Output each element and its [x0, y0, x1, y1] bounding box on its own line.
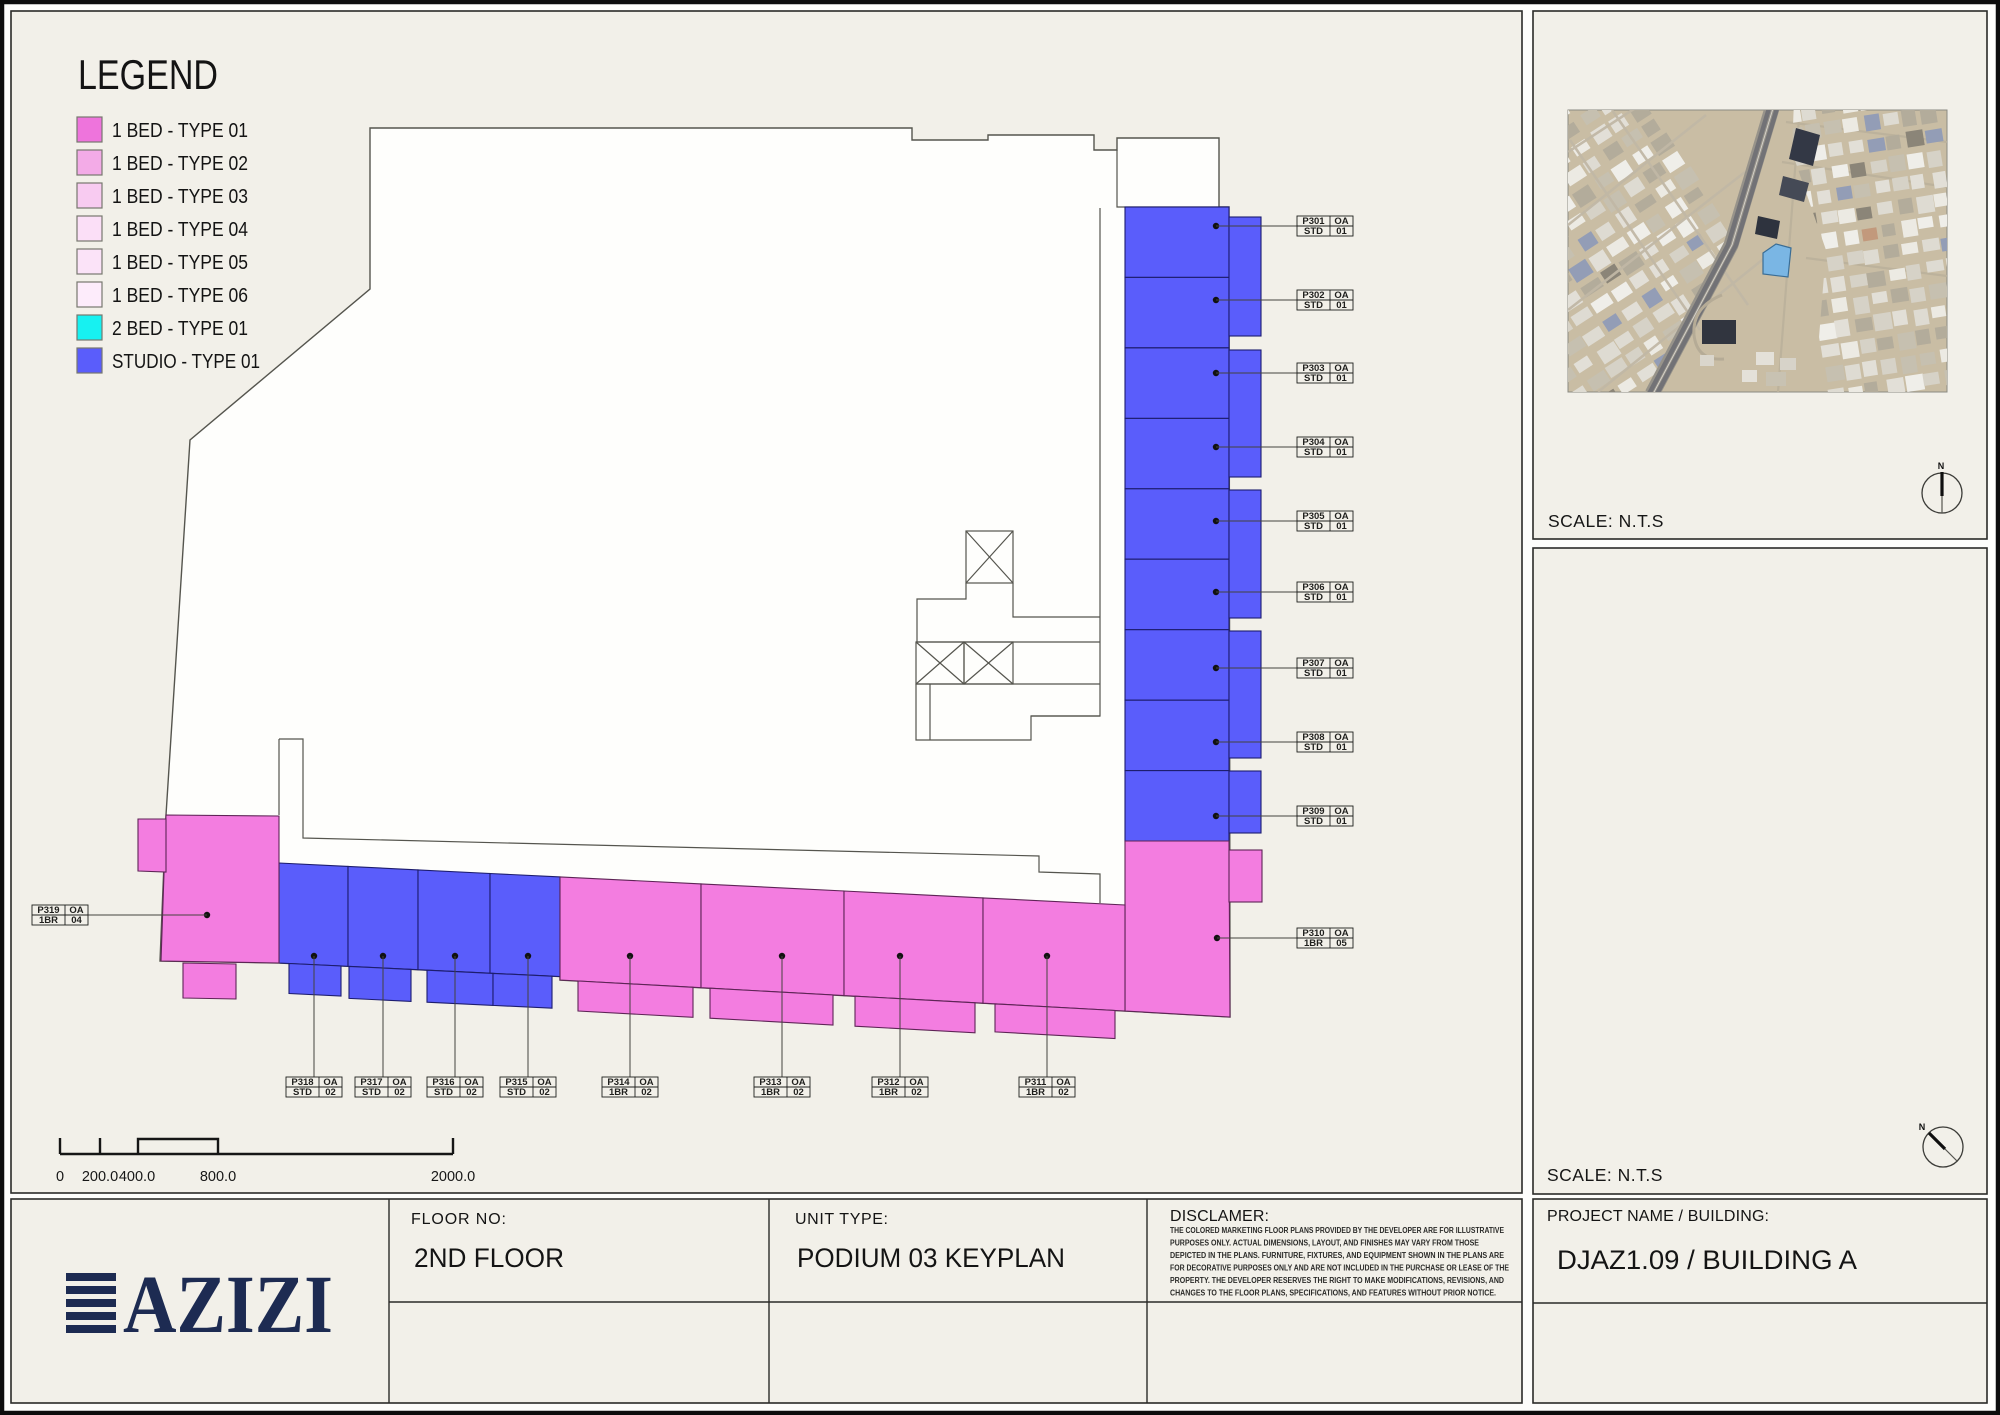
- svg-text:01: 01: [1336, 816, 1347, 827]
- svg-text:04: 04: [71, 915, 82, 926]
- svg-text:SCALE: N.T.S: SCALE: N.T.S: [1547, 1165, 1663, 1185]
- svg-text:01: 01: [1336, 668, 1347, 679]
- svg-text:PURPOSES ONLY. ACTUAL DIMENSIO: PURPOSES ONLY. ACTUAL DIMENSIONS, LAYOUT…: [1170, 1238, 1479, 1248]
- svg-text:STD: STD: [1304, 742, 1323, 753]
- svg-text:01: 01: [1336, 742, 1347, 753]
- svg-text:1 BED - TYPE 02: 1 BED - TYPE 02: [112, 152, 248, 175]
- svg-text:STD: STD: [1304, 668, 1323, 679]
- svg-text:1BR: 1BR: [879, 1087, 898, 1098]
- svg-text:DJAZ1.09 / BUILDING A: DJAZ1.09 / BUILDING A: [1557, 1245, 1857, 1275]
- svg-text:N: N: [1938, 461, 1945, 471]
- svg-text:N: N: [1919, 1122, 1926, 1132]
- svg-text:01: 01: [1336, 447, 1347, 458]
- svg-text:STD: STD: [1304, 816, 1323, 827]
- svg-text:02: 02: [394, 1087, 405, 1098]
- svg-text:STD: STD: [1304, 226, 1323, 237]
- svg-text:01: 01: [1336, 300, 1347, 311]
- svg-text:02: 02: [539, 1087, 550, 1098]
- svg-text:02: 02: [641, 1087, 652, 1098]
- svg-text:2000.0: 2000.0: [431, 1169, 475, 1185]
- svg-text:PROJECT NAME / BUILDING:: PROJECT NAME / BUILDING:: [1547, 1208, 1769, 1225]
- svg-text:UNIT TYPE:: UNIT TYPE:: [795, 1211, 888, 1228]
- svg-text:DISCLAMER:: DISCLAMER:: [1170, 1208, 1269, 1225]
- svg-text:01: 01: [1336, 592, 1347, 603]
- svg-text:02: 02: [911, 1087, 922, 1098]
- svg-text:1 BED - TYPE 01: 1 BED - TYPE 01: [112, 119, 248, 142]
- svg-text:05: 05: [1336, 938, 1347, 949]
- svg-text:02: 02: [1058, 1087, 1069, 1098]
- svg-text:PROPERTY. THE DEVELOPER RESERV: PROPERTY. THE DEVELOPER RESERVES THE RIG…: [1170, 1275, 1504, 1285]
- svg-text:1BR: 1BR: [609, 1087, 628, 1098]
- svg-text:STD: STD: [362, 1087, 381, 1098]
- svg-text:STD: STD: [1304, 447, 1323, 458]
- svg-text:STUDIO - TYPE 01: STUDIO - TYPE 01: [112, 350, 260, 373]
- svg-text:2 BED - TYPE 01: 2 BED - TYPE 01: [112, 317, 248, 340]
- svg-text:1BR: 1BR: [1304, 938, 1323, 949]
- svg-text:THE COLORED MARKETING FLOOR PL: THE COLORED MARKETING FLOOR PLANS PROVID…: [1170, 1225, 1504, 1235]
- svg-text:STD: STD: [434, 1087, 453, 1098]
- svg-text:STD: STD: [293, 1087, 312, 1098]
- svg-text:02: 02: [466, 1087, 477, 1098]
- svg-text:FOR DECORATIVE PURPOSES ONLY A: FOR DECORATIVE PURPOSES ONLY AND ARE NOT…: [1170, 1263, 1509, 1273]
- svg-text:200.0: 200.0: [82, 1169, 118, 1185]
- svg-text:1BR: 1BR: [39, 915, 58, 926]
- svg-text:CHANGES TO THE FLOOR PLANS, SP: CHANGES TO THE FLOOR PLANS, SPECIFICATIO…: [1170, 1288, 1496, 1298]
- svg-text:AZIZI: AZIZI: [123, 1258, 333, 1350]
- svg-text:STD: STD: [507, 1087, 526, 1098]
- svg-text:1 BED - TYPE 06: 1 BED - TYPE 06: [112, 284, 248, 307]
- svg-text:01: 01: [1336, 521, 1347, 532]
- svg-text:STD: STD: [1304, 521, 1323, 532]
- svg-text:01: 01: [1336, 373, 1347, 384]
- svg-text:02: 02: [325, 1087, 336, 1098]
- svg-text:1 BED - TYPE 04: 1 BED - TYPE 04: [112, 218, 248, 241]
- svg-text:01: 01: [1336, 226, 1347, 237]
- svg-text:DEPICTED IN THE PLANS. FURNITU: DEPICTED IN THE PLANS. FURNITURE, FIXTUR…: [1170, 1250, 1504, 1260]
- svg-text:2ND FLOOR: 2ND FLOOR: [414, 1243, 564, 1273]
- svg-text:800.0: 800.0: [200, 1169, 236, 1185]
- svg-text:02: 02: [793, 1087, 804, 1098]
- svg-text:1BR: 1BR: [1026, 1087, 1045, 1098]
- svg-text:STD: STD: [1304, 300, 1323, 311]
- svg-text:SCALE: N.T.S: SCALE: N.T.S: [1548, 511, 1664, 531]
- svg-text:STD: STD: [1304, 373, 1323, 384]
- svg-text:1 BED - TYPE 05: 1 BED - TYPE 05: [112, 251, 248, 274]
- svg-text:STD: STD: [1304, 592, 1323, 603]
- svg-text:PODIUM 03 KEYPLAN: PODIUM 03 KEYPLAN: [797, 1243, 1065, 1273]
- svg-text:FLOOR NO:: FLOOR NO:: [411, 1211, 506, 1228]
- svg-text:400.0: 400.0: [119, 1169, 155, 1185]
- svg-text:LEGEND: LEGEND: [78, 51, 218, 98]
- svg-text:1 BED - TYPE 03: 1 BED - TYPE 03: [112, 185, 248, 208]
- svg-text:0: 0: [56, 1169, 64, 1185]
- svg-text:1BR: 1BR: [761, 1087, 780, 1098]
